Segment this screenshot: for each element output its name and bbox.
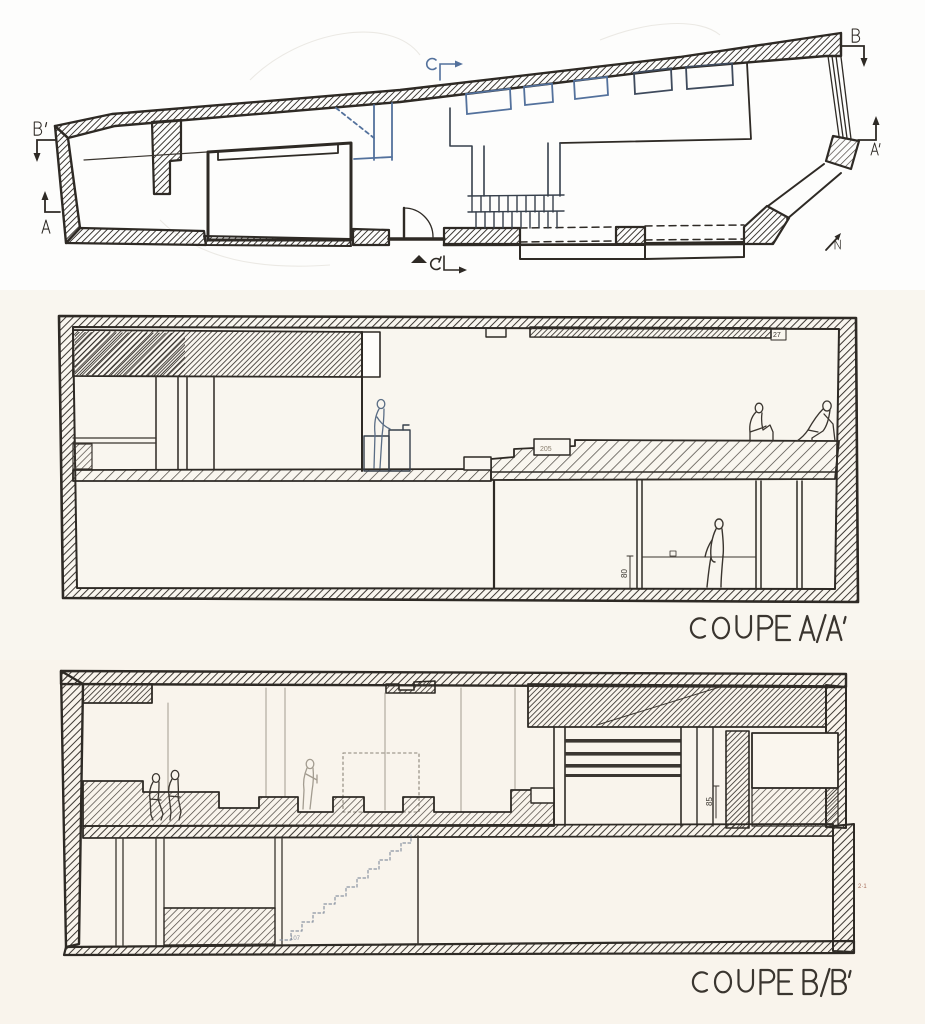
svg-text:80: 80: [620, 569, 629, 578]
svg-text:205: 205: [540, 446, 552, 453]
svg-text:85: 85: [705, 797, 714, 806]
svg-text:107: 107: [290, 936, 301, 942]
svg-text:2·1: 2·1: [858, 884, 867, 890]
svg-text:27: 27: [773, 332, 781, 339]
